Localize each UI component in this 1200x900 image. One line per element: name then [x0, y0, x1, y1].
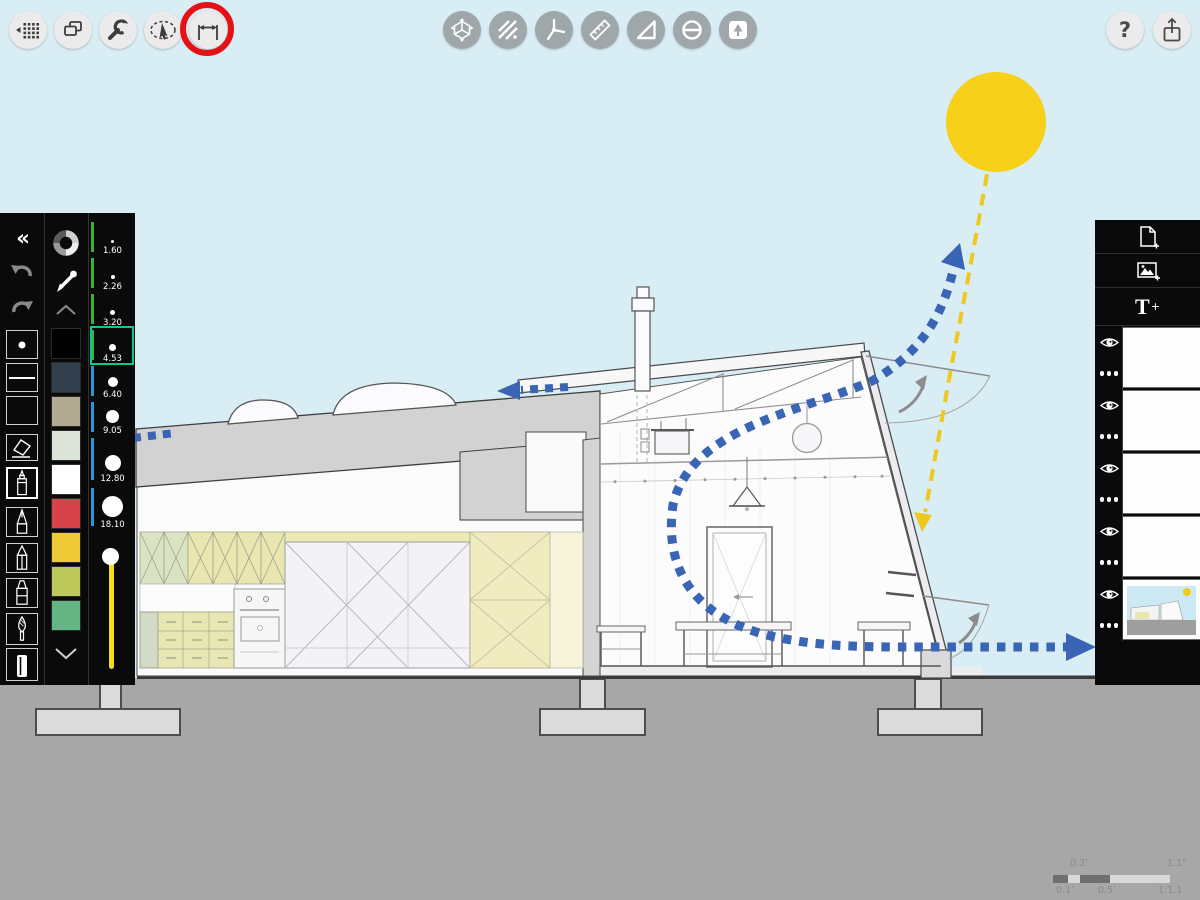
brush-dot-icon: [9, 334, 35, 356]
layer-2-options[interactable]: [1095, 421, 1123, 452]
tool-technical-pen[interactable]: [6, 507, 38, 537]
brush-size-3.20[interactable]: 3.20: [90, 292, 135, 328]
undo-icon: [9, 261, 35, 283]
eye-icon: [1100, 399, 1119, 412]
share-button[interactable]: [1153, 11, 1191, 49]
layer-1-thumbnail[interactable]: [1123, 327, 1200, 388]
kitchen-counter: [140, 584, 235, 612]
scale-bar-segment: [1110, 875, 1170, 883]
circle-diameter-button[interactable]: [673, 11, 711, 49]
scale-bar-segment: [1080, 875, 1110, 883]
stamp-tree-icon: [725, 17, 751, 43]
layer-1-options[interactable]: [1095, 358, 1123, 389]
brush-size-1.60[interactable]: 1.60: [90, 220, 135, 256]
collapse-panel-button[interactable]: «: [0, 225, 44, 251]
swatch-black[interactable]: [51, 328, 81, 359]
layer-3-visibility-toggle[interactable]: [1095, 452, 1123, 484]
sliding-panel-doors: [285, 532, 470, 668]
selected-size-indicator: [90, 326, 134, 365]
help-button[interactable]: ?: [1106, 11, 1144, 49]
eye-icon: [1100, 462, 1119, 475]
marker-icon: [9, 579, 35, 607]
set-square-button[interactable]: [627, 11, 665, 49]
swatch-yellow[interactable]: [51, 532, 81, 563]
angle-lines-icon: [541, 17, 567, 43]
scale-bottom-center-label: 0.5': [1098, 885, 1116, 896]
stamp-tree-button[interactable]: [719, 11, 757, 49]
wrench-settings-icon: [105, 17, 131, 43]
brush-size-9.05[interactable]: 9.05: [90, 400, 135, 436]
eye-icon: [1100, 336, 1119, 349]
color-wheel-icon: [51, 228, 81, 258]
app-window: { "toolbar_left": { "items": [ {"icon":"…: [0, 0, 1200, 900]
layer-4-options[interactable]: [1095, 547, 1123, 578]
tool-pencil[interactable]: [6, 543, 38, 573]
duplicate-button[interactable]: [54, 11, 92, 49]
hatch-fill-button[interactable]: [489, 11, 527, 49]
layer-4-visibility-toggle[interactable]: [1095, 515, 1123, 547]
duplicate-icon: [60, 17, 86, 43]
layer-1-visibility-toggle[interactable]: [1095, 326, 1123, 358]
eye-icon: [1100, 525, 1119, 538]
pencil-icon: [9, 544, 35, 572]
layer-4-thumbnail[interactable]: [1123, 516, 1200, 577]
hatch-fill-icon: [495, 17, 521, 43]
opacity-slider-track[interactable]: [109, 556, 114, 669]
layer-row-3: [1095, 452, 1200, 515]
swatch-sage[interactable]: [51, 430, 81, 461]
swatch-lime[interactable]: [51, 566, 81, 597]
color-wheel-button[interactable]: [44, 227, 88, 259]
eraser-icon: [9, 437, 35, 459]
orbit-3d-button[interactable]: [443, 11, 481, 49]
layer-3-options[interactable]: [1095, 484, 1123, 515]
redo-icon: [9, 297, 35, 319]
stroke-preview[interactable]: [6, 363, 38, 392]
door: [707, 527, 772, 667]
brush-size-2.26[interactable]: 2.26: [90, 256, 135, 292]
tools-panel: «: [0, 213, 135, 685]
add-text-button[interactable]: T+: [1095, 288, 1200, 326]
layers-panel: T+: [1095, 220, 1200, 685]
ruler-icon: [587, 17, 613, 43]
style-preview[interactable]: [6, 396, 38, 425]
scale-bar-segment: [1053, 875, 1068, 883]
technical-pen-icon: [9, 508, 35, 536]
add-image-button[interactable]: [1095, 254, 1200, 288]
stroke-line-icon: [8, 367, 36, 389]
eyedropper-icon: [52, 268, 80, 296]
kitchen-upper-cabinets: [140, 532, 285, 584]
tall-cabinet: [470, 532, 583, 668]
eye-icon: [1100, 588, 1119, 601]
scale-bar-segment: [1068, 875, 1080, 883]
chevron-up-icon: [54, 303, 78, 317]
layer-5-visibility-toggle[interactable]: [1095, 578, 1123, 610]
airflow-dashes-left-edge: [133, 433, 175, 438]
paint-tube-icon: [9, 650, 35, 680]
drawing-canvas[interactable]: [0, 0, 1200, 900]
layer-2-thumbnail[interactable]: [1123, 390, 1200, 451]
orbit-3d-icon: [449, 17, 475, 43]
sun: [946, 72, 1046, 172]
scale-top-right-label: 1.1": [1167, 858, 1186, 869]
add-page-button[interactable]: [1095, 220, 1200, 254]
add-image-icon: [1134, 258, 1162, 284]
building-left-section: [136, 383, 600, 676]
layer-3-thumbnail[interactable]: [1123, 453, 1200, 514]
layer-row-5: [1095, 578, 1200, 641]
brush-size-6.40[interactable]: 6.40: [90, 364, 135, 400]
fineliner-pen-icon: [9, 469, 35, 497]
brush-size-12.80[interactable]: 12.80: [90, 436, 135, 484]
circle-diameter-icon: [679, 17, 705, 43]
lasso-select-icon: [148, 17, 178, 43]
tool-fineliner-pen[interactable]: [6, 467, 38, 499]
annotation-red-circle: [180, 2, 234, 56]
kitchen-drawers: [158, 612, 234, 668]
add-page-icon: [1135, 224, 1161, 250]
share-icon: [1159, 17, 1185, 43]
layer-row-1: [1095, 326, 1200, 389]
brush-size-18.10[interactable]: 18.10: [90, 484, 135, 530]
lasso-select-button[interactable]: [144, 11, 182, 49]
brush-tip-preview[interactable]: [6, 330, 38, 359]
swatch-red[interactable]: [51, 498, 81, 529]
tool-paint-tube[interactable]: [6, 648, 38, 681]
layer-5-thumbnail[interactable]: [1123, 579, 1200, 640]
swatch-tan[interactable]: [51, 396, 81, 427]
scale-top-left-label: 0.3': [1070, 858, 1088, 869]
redo-button[interactable]: [0, 295, 44, 321]
paintbrush-icon: [9, 615, 35, 643]
layer-row-2: [1095, 389, 1200, 452]
angle-lines-button[interactable]: [535, 11, 573, 49]
swatch-scroll-up[interactable]: [44, 299, 88, 321]
tool-paintbrush[interactable]: [6, 613, 38, 645]
opacity-slider-knob[interactable]: [102, 548, 119, 565]
chevron-down-icon: [53, 646, 79, 661]
grid-pan-icon: [15, 17, 41, 43]
layer-5-options[interactable]: [1095, 610, 1123, 641]
swatch-slate[interactable]: [51, 362, 81, 393]
scale-bottom-right-label: 1:1.1: [1158, 885, 1182, 896]
ruler-button[interactable]: [581, 11, 619, 49]
layer-5-thumbnail-drawing: [1123, 580, 1200, 640]
layer-row-4: [1095, 515, 1200, 578]
swatch-white[interactable]: [51, 464, 81, 495]
scale-indicator[interactable]: 0.3' 1.1" 0.1' 0.5' 1:1.1: [1050, 858, 1195, 898]
tool-eraser[interactable]: [6, 434, 38, 461]
help-icon: ?: [1119, 18, 1131, 42]
settings-button[interactable]: [99, 11, 137, 49]
kitchen-oven: [234, 589, 285, 668]
layer-2-visibility-toggle[interactable]: [1095, 389, 1123, 421]
swatch-scroll-down[interactable]: [44, 641, 88, 665]
undo-button[interactable]: [0, 259, 44, 285]
eyedropper-button[interactable]: [44, 267, 88, 297]
swatch-green[interactable]: [51, 600, 81, 631]
scale-bottom-left-label: 0.1': [1056, 885, 1074, 896]
tool-marker[interactable]: [6, 578, 38, 608]
grid-pan-button[interactable]: [9, 11, 47, 49]
set-square-icon: [633, 17, 659, 43]
